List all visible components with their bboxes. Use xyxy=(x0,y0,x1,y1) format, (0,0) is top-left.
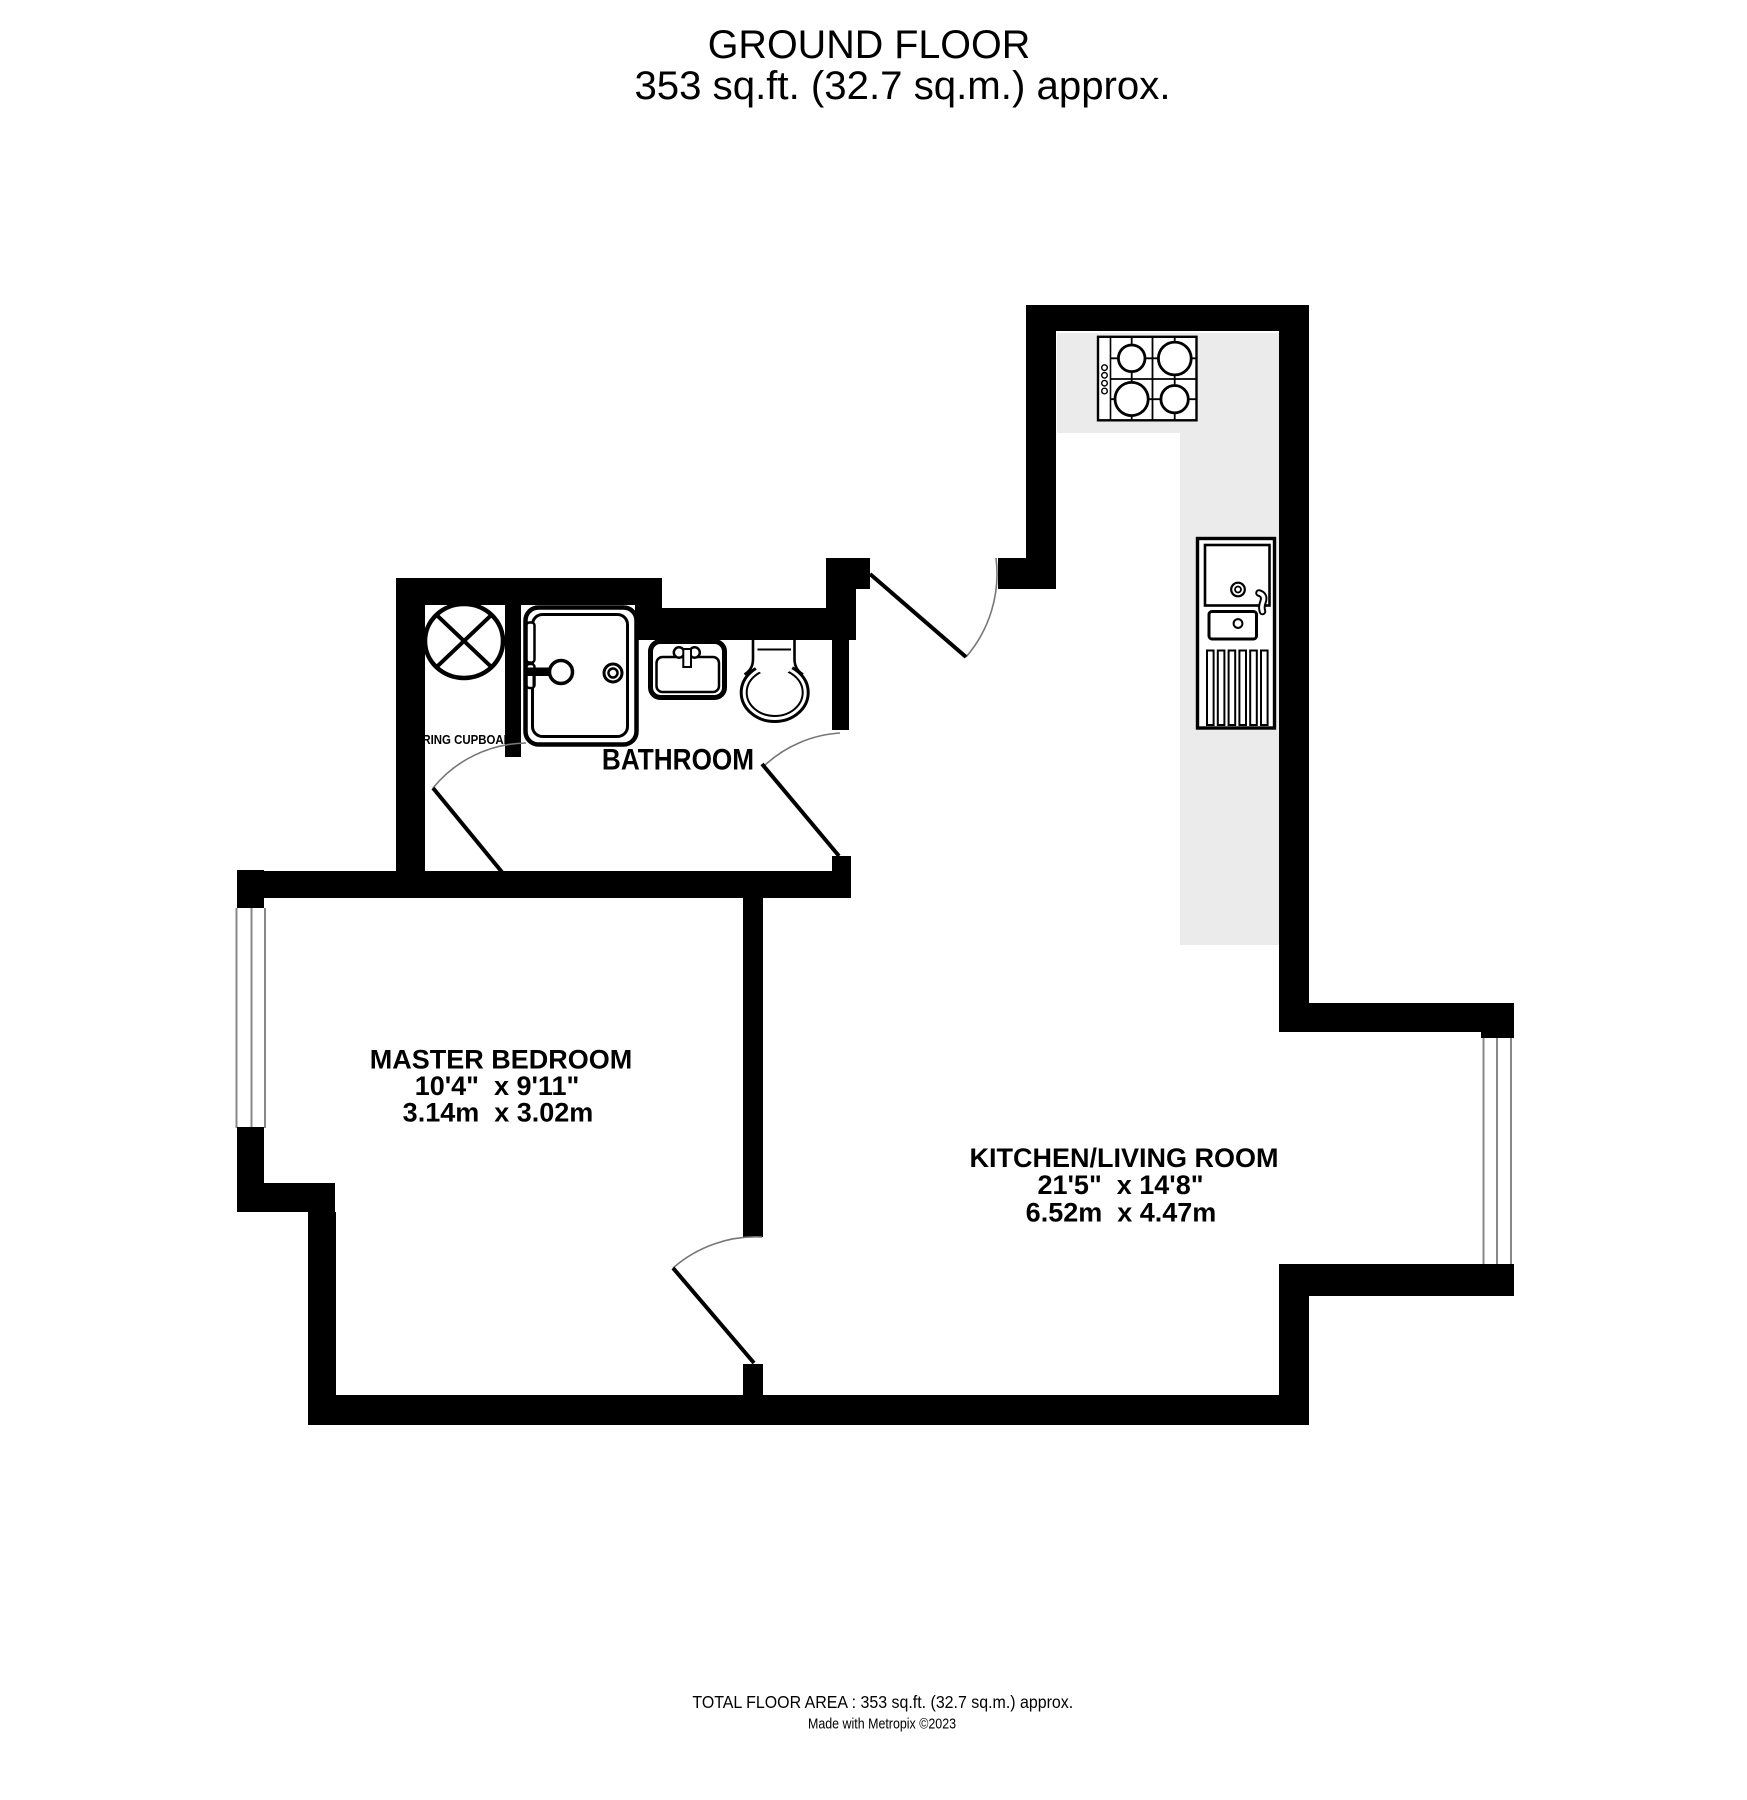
svg-text:10'4" x 9'11": 10'4" x 9'11" xyxy=(415,1071,580,1101)
svg-text:21'5" x 14'8": 21'5" x 14'8" xyxy=(1037,1170,1203,1200)
svg-text:MASTER BEDROOM: MASTER BEDROOM xyxy=(370,1045,633,1075)
svg-text:GROUND FLOOR: GROUND FLOOR xyxy=(708,23,1031,67)
svg-text:Made with Metropix ©2023: Made with Metropix ©2023 xyxy=(808,1715,956,1731)
svg-text:KITCHEN/LIVING ROOM: KITCHEN/LIVING ROOM xyxy=(970,1143,1279,1173)
svg-text:6.52m x 4.47m: 6.52m x 4.47m xyxy=(1026,1197,1217,1227)
svg-text:353 sq.ft. (32.7 sq.m.) approx: 353 sq.ft. (32.7 sq.m.) approx. xyxy=(634,63,1170,108)
svg-text:TOTAL FLOOR AREA : 353 sq.ft.: TOTAL FLOOR AREA : 353 sq.ft. (32.7 sq.m… xyxy=(692,1692,1073,1712)
svg-text:3.14m x 3.02m: 3.14m x 3.02m xyxy=(403,1098,594,1128)
svg-text:BATHROOM: BATHROOM xyxy=(602,743,754,776)
